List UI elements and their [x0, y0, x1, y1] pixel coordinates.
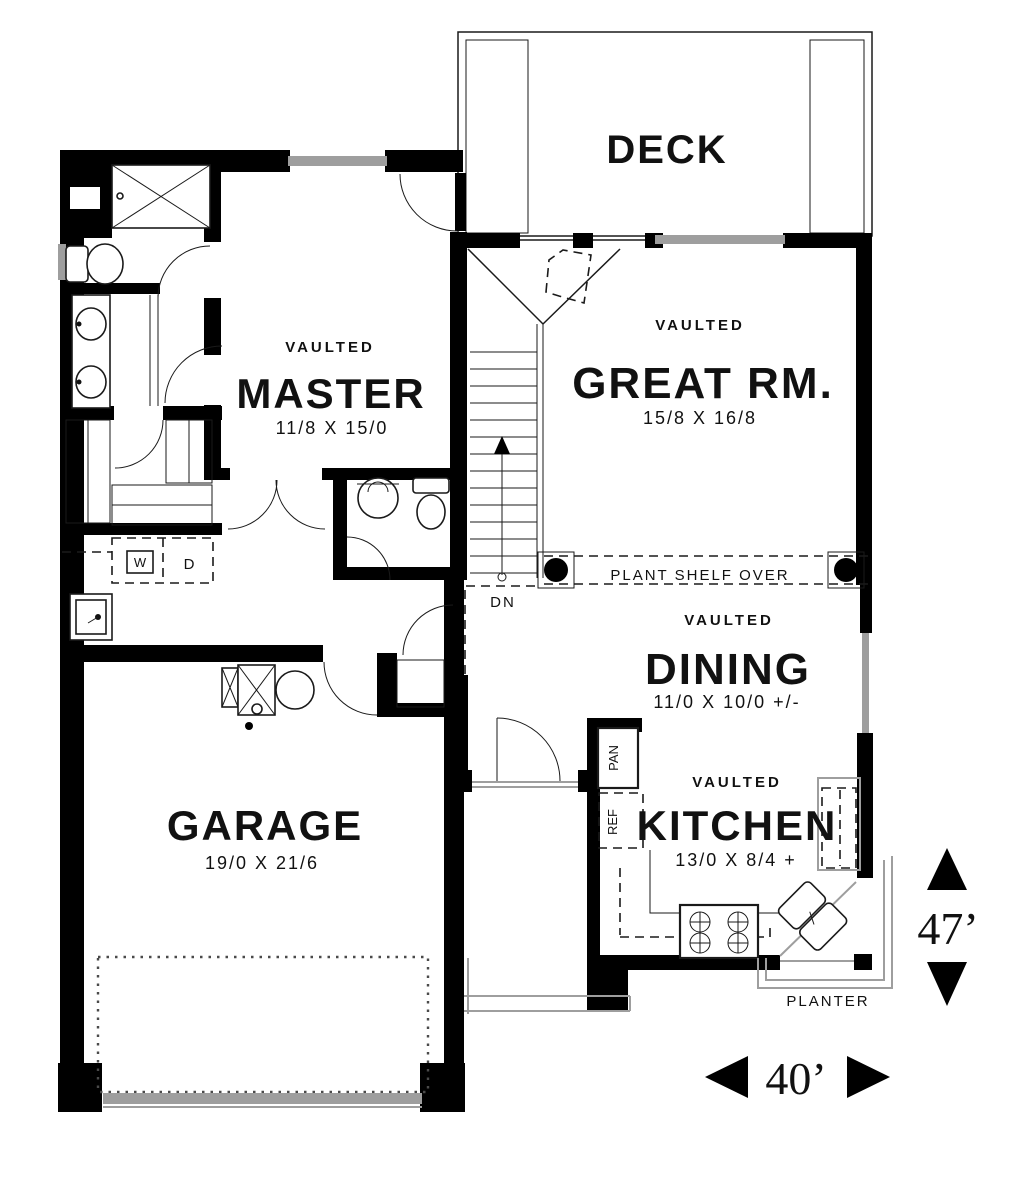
great-room-label: VAULTED GREAT RM. 15/8 X 16/8	[572, 317, 834, 428]
dining-label: VAULTED DINING 11/0 X 10/0 +/-	[645, 612, 811, 712]
shower-icon	[112, 165, 210, 228]
svg-text:VAULTED: VAULTED	[692, 774, 782, 791]
fireplace	[468, 249, 620, 324]
svg-text:GARAGE: GARAGE	[167, 802, 363, 849]
garage-details	[98, 665, 428, 1107]
depth-value: 47’	[917, 903, 978, 954]
master-label: VAULTED MASTER 11/8 X 15/0	[236, 339, 425, 438]
toilet-icon	[66, 244, 123, 284]
furnace-icon	[222, 665, 275, 715]
dimension-depth: 47’	[917, 848, 978, 1006]
deck-hatch-right	[810, 40, 864, 233]
svg-text:DINING: DINING	[645, 645, 811, 694]
arrow-left-icon	[705, 1056, 748, 1098]
vanity-double-sink-icon	[72, 295, 158, 408]
pantry-label: PAN	[606, 745, 621, 771]
closet-door	[115, 420, 163, 468]
svg-text:13/0 X 8/4 +: 13/0 X 8/4 +	[675, 850, 797, 870]
stairs-dn-label: DN	[490, 594, 516, 611]
garage-door-track	[98, 957, 428, 1092]
deck-label: DECK	[606, 128, 727, 172]
dryer-label: D	[184, 556, 197, 573]
arrow-right-icon	[847, 1056, 890, 1098]
floor-plan-drawing: DECK	[0, 0, 1024, 1189]
svg-text:KITCHEN: KITCHEN	[637, 802, 838, 849]
arrow-up-icon	[927, 848, 967, 890]
svg-text:GREAT RM.: GREAT RM.	[572, 359, 834, 408]
corner-sink-icon	[777, 880, 849, 952]
kitchen-label: VAULTED KITCHEN 13/0 X 8/4 +	[637, 774, 838, 870]
toilet-icon	[413, 478, 449, 529]
planter-label: PLANTER	[786, 993, 869, 1010]
walkin-closet	[66, 420, 212, 525]
stairs: DN	[465, 324, 543, 674]
coat-closet-rod	[397, 660, 444, 707]
pedestal-sink-icon	[357, 478, 399, 518]
plant-shelf-label: PLANT SHELF OVER	[610, 567, 789, 584]
stair-treads	[470, 352, 537, 573]
utility-sink-icon	[70, 594, 112, 640]
deck-area: DECK	[458, 32, 872, 236]
svg-text:MASTER: MASTER	[236, 370, 425, 417]
svg-text:VAULTED: VAULTED	[684, 612, 774, 629]
garage-label: GARAGE 19/0 X 21/6	[167, 802, 363, 873]
svg-text:19/0 X 21/6: 19/0 X 21/6	[205, 853, 319, 873]
bath-window	[58, 244, 66, 280]
washer-label: W	[134, 555, 147, 570]
fireplace-flue	[546, 250, 591, 303]
water-heater-icon	[276, 671, 314, 709]
svg-text:11/8 X 15/0: 11/8 X 15/0	[276, 418, 389, 438]
svg-text:VAULTED: VAULTED	[285, 339, 375, 356]
powder-room	[357, 478, 449, 529]
stair-direction-arrow	[494, 436, 510, 581]
arrow-down-icon	[927, 962, 967, 1006]
front-door	[497, 718, 560, 781]
width-value: 40’	[765, 1053, 826, 1104]
deck-hatch-left	[466, 40, 528, 233]
svg-text:15/8 X 16/8: 15/8 X 16/8	[643, 408, 757, 428]
svg-text:11/0 X 10/0 +/-: 11/0 X 10/0 +/-	[653, 692, 800, 712]
master-deck-door-leaf	[455, 173, 466, 231]
walls	[58, 150, 873, 1112]
master-double-door-left	[228, 480, 277, 529]
bath-compartment-door	[158, 246, 210, 298]
dining-window	[862, 633, 869, 733]
floor-plan-page: DECK	[0, 0, 1024, 1189]
slider-door	[655, 235, 785, 244]
fridge-label: REF	[605, 809, 620, 835]
plant-shelf: PLANT SHELF OVER	[538, 552, 868, 588]
svg-text:VAULTED: VAULTED	[655, 317, 745, 334]
dimension-width: 40’	[705, 1053, 890, 1104]
garage-entry-door	[324, 662, 377, 715]
laundry: W D	[62, 538, 213, 640]
floor-drain-icon	[245, 722, 253, 730]
garage-door	[103, 1093, 422, 1104]
stove-icon	[680, 905, 758, 958]
master-double-door-right	[276, 480, 325, 529]
master-window	[288, 156, 387, 166]
master-deck-door	[400, 174, 457, 231]
